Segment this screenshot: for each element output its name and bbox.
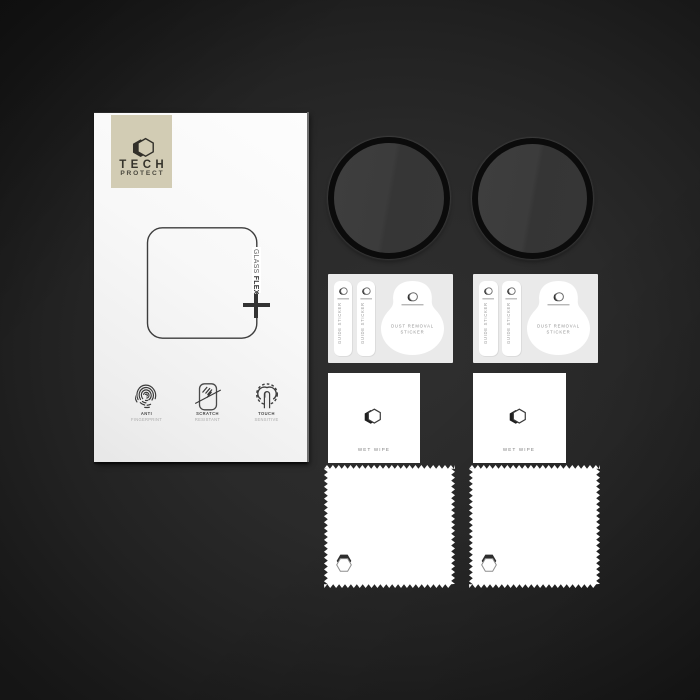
svg-text:DUST REMOVAL: DUST REMOVAL xyxy=(391,324,434,329)
svg-text:STICKER: STICKER xyxy=(400,330,424,335)
svg-text:STICKER: STICKER xyxy=(546,330,570,335)
svg-text:DUST REMOVAL: DUST REMOVAL xyxy=(537,324,580,329)
